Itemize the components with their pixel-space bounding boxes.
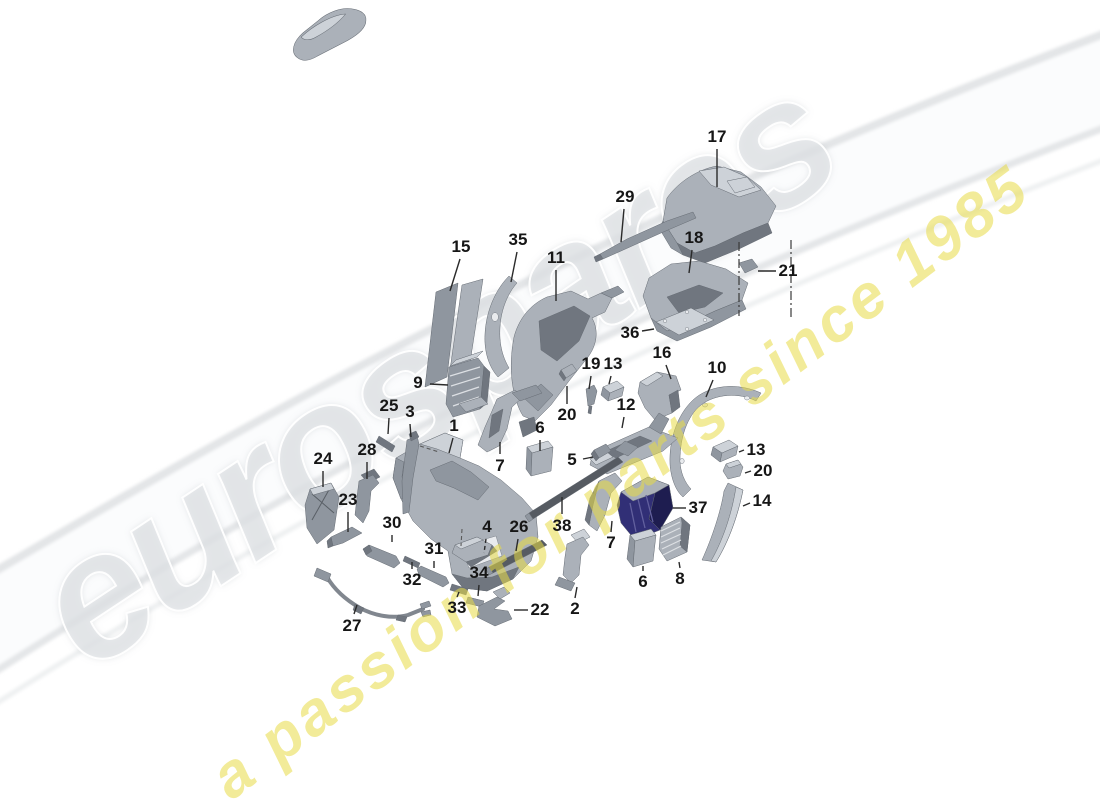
part-label-29[interactable]: 29 — [616, 187, 635, 207]
part-6a-shape[interactable] — [526, 441, 553, 476]
part-label-13a[interactable]: 13 — [604, 354, 623, 374]
car-thumbnail — [285, 0, 372, 64]
parts-artwork — [0, 0, 1100, 800]
part-label-37[interactable]: 37 — [689, 498, 708, 518]
leader-line-36 — [642, 329, 654, 331]
part-label-9[interactable]: 9 — [413, 373, 422, 393]
part-31-shape[interactable] — [417, 566, 449, 587]
part-14-shape[interactable] — [702, 483, 743, 562]
leader-line-8 — [679, 562, 680, 568]
leader-line-29 — [621, 209, 624, 242]
part-label-31[interactable]: 31 — [425, 539, 444, 559]
part-label-22[interactable]: 22 — [531, 600, 550, 620]
part-label-1[interactable]: 1 — [449, 416, 458, 436]
part-label-7b[interactable]: 7 — [606, 533, 615, 553]
part-label-27[interactable]: 27 — [343, 616, 362, 636]
part-label-38[interactable]: 38 — [553, 516, 572, 536]
part-label-13b[interactable]: 13 — [747, 440, 766, 460]
part-24-shape[interactable] — [305, 483, 339, 544]
part-label-20a[interactable]: 20 — [558, 405, 577, 425]
leader-line-12 — [622, 417, 624, 428]
part-label-23[interactable]: 23 — [339, 490, 358, 510]
part-label-16[interactable]: 16 — [653, 343, 672, 363]
part-label-19[interactable]: 19 — [582, 354, 601, 374]
leader-line-14 — [743, 503, 750, 506]
part-label-35[interactable]: 35 — [509, 230, 528, 250]
part-label-33[interactable]: 33 — [448, 598, 467, 618]
part-label-8[interactable]: 8 — [675, 569, 684, 589]
leader-line-13b — [739, 450, 744, 452]
part-22-shape[interactable] — [477, 587, 512, 626]
part-label-5[interactable]: 5 — [567, 450, 576, 470]
part-21-shape[interactable] — [739, 259, 758, 273]
part-label-24[interactable]: 24 — [314, 449, 333, 469]
part-label-6b[interactable]: 6 — [638, 572, 647, 592]
leader-line-2 — [575, 587, 577, 598]
part-label-26[interactable]: 26 — [510, 517, 529, 537]
part-label-14[interactable]: 14 — [753, 491, 772, 511]
part-label-4[interactable]: 4 — [482, 517, 491, 537]
part-2-shape[interactable] — [555, 529, 590, 591]
leader-line-25 — [388, 418, 389, 434]
part-12-shape[interactable] — [590, 413, 678, 474]
part-label-25[interactable]: 25 — [380, 396, 399, 416]
leader-line-13a — [609, 376, 611, 384]
part-16-shape[interactable] — [638, 372, 681, 420]
part-label-6a[interactable]: 6 — [535, 418, 544, 438]
leader-line-20b — [745, 471, 751, 473]
part-label-36[interactable]: 36 — [621, 323, 640, 343]
part-28-shape[interactable] — [355, 469, 380, 523]
part-label-20b[interactable]: 20 — [754, 461, 773, 481]
part-label-2[interactable]: 2 — [570, 599, 579, 619]
leader-line-35 — [511, 252, 517, 282]
part-32-shape[interactable] — [403, 556, 420, 568]
part-label-15[interactable]: 15 — [452, 237, 471, 257]
part-label-32[interactable]: 32 — [403, 570, 422, 590]
watermark-tagline: a passion for parts since 1985 — [201, 155, 1041, 800]
part-label-11[interactable]: 11 — [547, 248, 565, 268]
part-label-10[interactable]: 10 — [708, 358, 727, 378]
part-19-shape[interactable] — [586, 385, 597, 414]
part-label-34[interactable]: 34 — [470, 563, 489, 583]
part-label-12[interactable]: 12 — [617, 395, 636, 415]
part-30-shape[interactable] — [363, 545, 400, 568]
part-label-28[interactable]: 28 — [358, 440, 377, 460]
part-label-18[interactable]: 18 — [685, 228, 704, 248]
part-label-3[interactable]: 3 — [405, 402, 414, 422]
leader-line-9 — [430, 384, 448, 385]
swoosh-edge-lower2 — [0, 150, 1100, 720]
part-6b-shape[interactable] — [627, 529, 656, 567]
part-25-shape[interactable] — [376, 436, 395, 452]
parts-diagram-page: eurospares — [0, 0, 1100, 800]
part-label-21[interactable]: 21 — [779, 261, 798, 281]
part-18-shape[interactable] — [643, 261, 748, 341]
part-13b-shape[interactable] — [711, 440, 738, 462]
part-label-30[interactable]: 30 — [383, 513, 402, 533]
part-20b-shape[interactable] — [723, 460, 743, 479]
part-label-7a[interactable]: 7 — [495, 456, 504, 476]
part-17-shape[interactable] — [659, 166, 776, 263]
leader-line-7b — [611, 521, 612, 532]
part-label-17[interactable]: 17 — [708, 127, 727, 147]
